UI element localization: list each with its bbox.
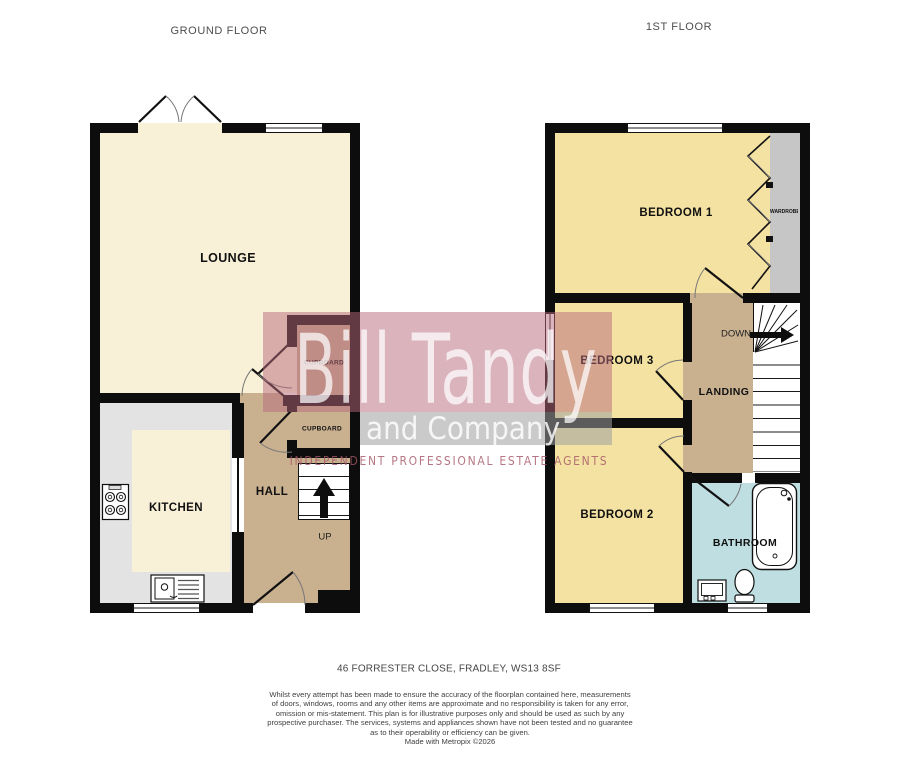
- wall-segment: [545, 293, 690, 303]
- wall-segment: [545, 418, 692, 428]
- lounge-window: [265, 123, 323, 133]
- cupboard1-label: CUPBOARD: [304, 360, 344, 367]
- bedroom3-door: [650, 356, 690, 404]
- wall-segment: [350, 133, 360, 613]
- landing-label: LANDING: [699, 386, 750, 398]
- wall-segment: [723, 123, 810, 133]
- wall-segment: [222, 123, 265, 133]
- bedroom2-door: [652, 428, 690, 476]
- disclaimer-credit: Made with Metropix ©2026: [0, 737, 900, 746]
- wall-segment: [232, 403, 244, 458]
- lounge-label: LOUNGE: [200, 251, 256, 265]
- cupboard2-door: [254, 404, 298, 458]
- wall-segment: [545, 133, 555, 313]
- kitchen-window: [133, 603, 200, 613]
- bedroom1-door: [686, 260, 748, 302]
- wall-segment: [90, 133, 100, 613]
- bedroom2-label: BEDROOM 2: [580, 509, 653, 521]
- watermark-company-text: and Company: [366, 414, 560, 445]
- wall-segment: [545, 603, 589, 613]
- stove-icon: [101, 483, 131, 521]
- disclaimer-line: of doors, windows, rooms and any other i…: [0, 699, 900, 708]
- bedroom3-window: [545, 313, 555, 361]
- first-floor-title: 1ST FLOOR: [646, 21, 712, 33]
- wall-segment: [90, 123, 138, 133]
- wall-segment: [800, 133, 810, 613]
- wall-segment: [90, 603, 133, 613]
- toilet-icon: [731, 567, 760, 604]
- bedroom1-window: [627, 123, 723, 133]
- wall-segment: [287, 315, 360, 325]
- up-label: UP: [318, 532, 331, 543]
- wardrobe-label: WARDROBE: [770, 209, 798, 218]
- floorplan-page: GROUND FLOOR 1ST FLOOR: [0, 0, 900, 773]
- wall-segment: [683, 303, 692, 362]
- wall-segment: [743, 293, 800, 303]
- wall-segment: [545, 123, 627, 133]
- down-label: DOWN: [721, 329, 751, 340]
- patio-double-door: [135, 88, 225, 124]
- wall-segment: [318, 590, 360, 603]
- wall-segment: [305, 603, 360, 613]
- down-arrow-shaft: [750, 332, 781, 338]
- disclaimer-line: as to their operability or efficiency ca…: [0, 728, 900, 737]
- front-door: [248, 564, 310, 608]
- wall-segment: [655, 603, 727, 613]
- sink-icon: [697, 579, 728, 603]
- wall-segment: [90, 393, 240, 403]
- disclaimer: Whilst every attempt has been made to en…: [0, 690, 900, 746]
- bathroom-window: [727, 603, 768, 613]
- disclaimer-line: prospective purchaser. The services, sys…: [0, 718, 900, 727]
- wall-segment: [232, 532, 244, 603]
- patio-door-threshold: [138, 123, 222, 133]
- wall-segment: [323, 123, 360, 133]
- bedroom1-label: BEDROOM 1: [639, 207, 712, 219]
- kitchen-floor-inner: [132, 430, 230, 572]
- up-arrow-shaft: [320, 494, 328, 518]
- disclaimer-line: Whilst every attempt has been made to en…: [0, 690, 900, 699]
- kitchen-sink-icon: [150, 574, 206, 604]
- stairs-treads: [753, 352, 800, 472]
- wall-segment: [200, 603, 253, 613]
- cupboard2-label: CUPBOARD: [302, 426, 342, 433]
- ground-floor-title: GROUND FLOOR: [170, 25, 267, 37]
- wall-segment: [545, 361, 555, 613]
- bathroom-door: [688, 473, 744, 511]
- bathtub-icon: [751, 482, 799, 572]
- down-arrow-icon: [781, 327, 794, 343]
- open-doorway-line: [237, 458, 239, 532]
- disclaimer-line: omission or mis-statement. This plan is …: [0, 709, 900, 718]
- bedroom3-label: BEDROOM 3: [580, 355, 653, 367]
- wall-segment: [768, 603, 810, 613]
- property-address: 46 FORRESTER CLOSE, FRADLEY, WS13 8SF: [337, 664, 561, 675]
- bathroom-label: BATHROOM: [713, 537, 777, 549]
- kitchen-label: KITCHEN: [149, 502, 203, 514]
- hall-label: HALL: [256, 486, 288, 498]
- bedroom2-window: [589, 603, 655, 613]
- cupboard1-door: [252, 335, 298, 393]
